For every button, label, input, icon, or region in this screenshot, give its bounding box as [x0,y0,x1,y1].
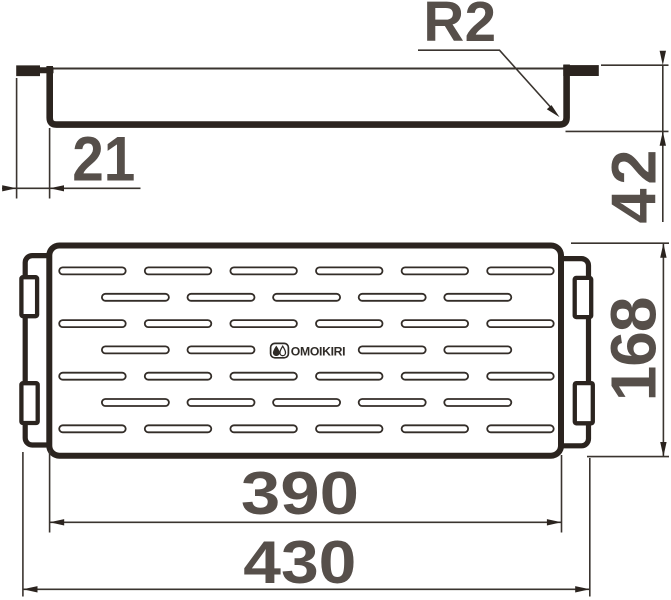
svg-text:42: 42 [599,146,669,224]
svg-text:168: 168 [598,298,670,402]
svg-text:R2: R2 [423,0,496,53]
svg-text:430: 430 [243,529,356,596]
svg-text:21: 21 [72,124,135,194]
svg-text:390: 390 [241,460,359,527]
svg-text:OMOIKIRI: OMOIKIRI [291,345,345,359]
